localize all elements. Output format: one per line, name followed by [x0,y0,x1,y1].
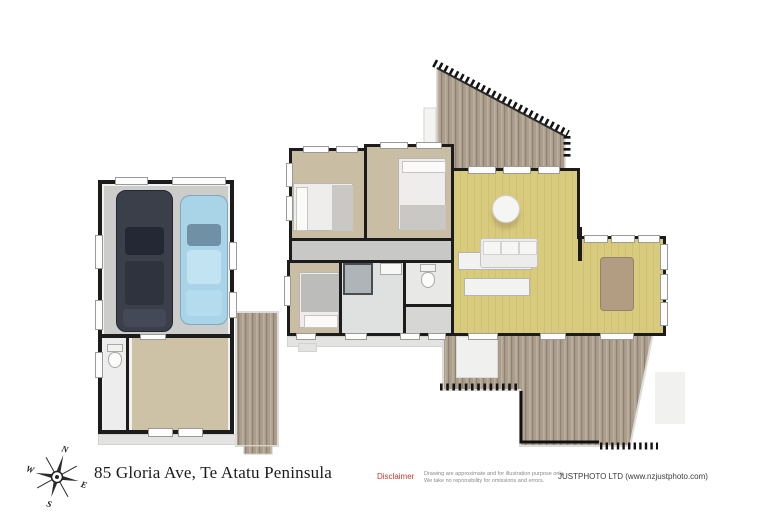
sofa-cushion-1 [483,241,501,255]
bedroom3-window-side [284,276,291,306]
bedroom2-window-1 [380,142,408,149]
bed-1-blanket [332,185,353,231]
compass-west-label: W [25,463,36,475]
bottom-window-1 [345,333,367,340]
bathroom-vanity [380,263,402,275]
compass-south-label: S [45,498,53,509]
dining-top-window-3 [638,235,660,243]
rumpus-door [140,334,166,340]
dining-wall-stub [578,227,582,261]
bedroom1-window-side-1 [286,163,293,187]
sofa [480,238,538,268]
round-table [492,195,520,223]
bed-2-pillow [402,161,446,173]
laundry [403,304,454,336]
living-bottom-window-1 [468,333,498,340]
dining-top-window-1 [584,235,608,243]
bedroom1-window-1 [303,146,329,153]
slider-door-2 [503,166,531,174]
bed-3 [299,272,339,328]
compass-icon: N S W E [17,435,96,512]
garage-deck [236,312,278,454]
bedroom1-window-side-2 [286,196,293,221]
bathroom-window-left [95,352,103,378]
car-dark-hood [123,309,166,327]
garage-window-left-2 [95,300,103,330]
garage-window-right-1 [229,242,237,270]
slider-door-3 [538,166,560,174]
car-blue-roof [187,250,221,284]
dining-table [600,257,634,311]
rumpus-window-2 [178,428,203,437]
porch-pillar [456,336,498,378]
rumpus-room [132,338,228,430]
bed-3-blanket [301,274,339,312]
bed-1 [293,183,353,231]
sofa-cushion-3 [519,241,537,255]
dining-right-window-3 [660,302,668,326]
kitchen-island [464,278,530,296]
dining-top-window-2 [611,235,635,243]
dining-bottom-window [600,333,634,340]
slider-door-1 [468,166,496,174]
garage-toilet-cistern [107,344,123,352]
garage-door-left [115,177,148,185]
car-dark-windshield [125,227,164,255]
garage-window-left-1 [95,235,103,269]
bed-2-blanket [400,205,446,230]
bottom-window-3 [428,333,446,340]
pergola-shade [655,372,685,424]
car-blue-windshield [187,224,221,246]
bed-3-pillow [304,315,338,328]
compass-north-label: N [60,443,70,455]
bed-1-pillow [296,187,308,231]
shower [343,263,373,295]
garage-toilet [108,352,122,368]
garage-window-right-2 [229,292,237,318]
garage-divider-wall [102,334,230,338]
bed-2 [398,158,446,230]
bedroom2-window-2 [416,142,442,149]
car-dark-roof [125,261,164,305]
wc-toilet [421,272,435,288]
garage-door-right [172,177,226,185]
car-dark-suv [116,190,173,332]
living-bottom-window-2 [540,333,566,340]
bottom-window-2 [400,333,420,340]
compass-east-label: E [79,479,89,491]
rumpus-window-1 [148,428,173,437]
bedroom1-window-2 [336,146,358,153]
wc-toilet-cistern [420,264,436,272]
car-blue [180,195,228,325]
floorplan-canvas: N S W E [0,0,768,512]
entry-door [296,333,316,340]
sofa-cushion-2 [501,241,519,255]
dining-right-window-1 [660,244,668,270]
dining-right-window-2 [660,274,668,300]
car-blue-hood [186,290,222,316]
